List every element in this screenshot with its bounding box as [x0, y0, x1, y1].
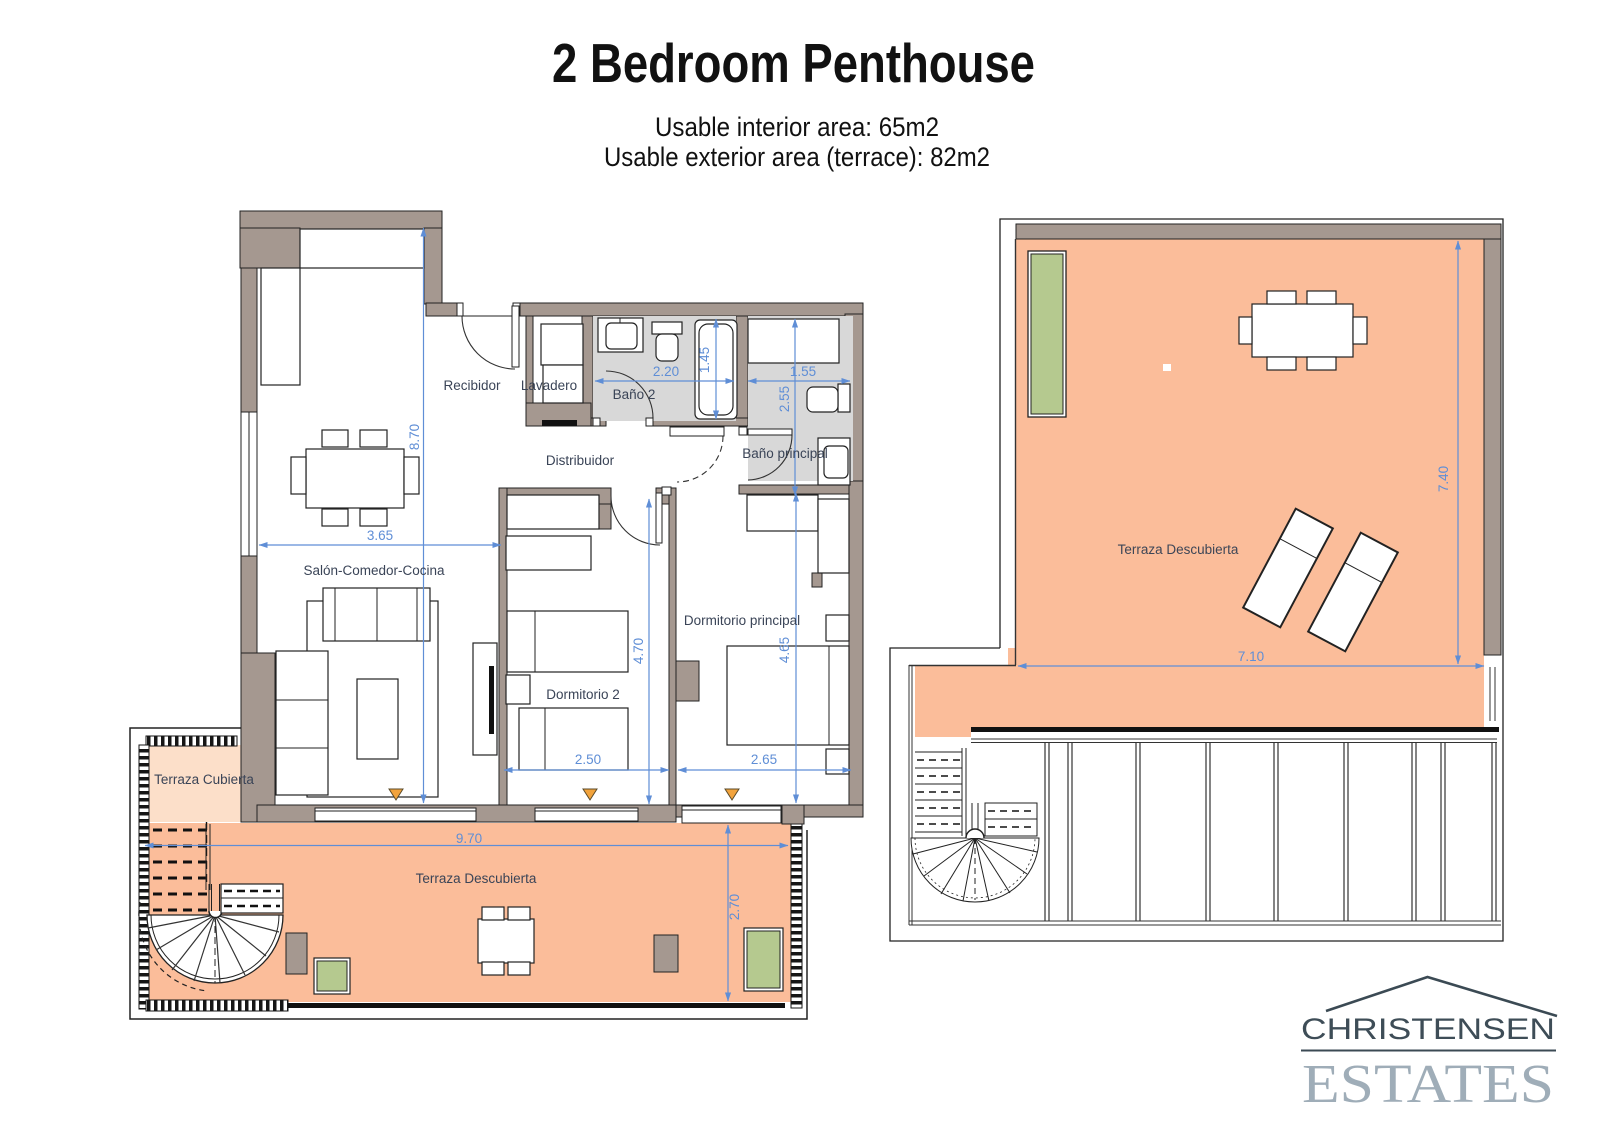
svg-text:9.70: 9.70: [456, 831, 482, 846]
svg-text:Salón-Comedor-Cocina: Salón-Comedor-Cocina: [303, 563, 445, 578]
svg-text:2.55: 2.55: [777, 386, 792, 412]
svg-text:Baño 2: Baño 2: [613, 387, 656, 402]
svg-text:1.55: 1.55: [790, 364, 816, 379]
svg-text:2.70: 2.70: [727, 894, 742, 920]
svg-text:Usable exterior area (terrace): Usable exterior area (terrace): 82m2: [604, 142, 990, 172]
svg-text:3.65: 3.65: [367, 528, 393, 543]
svg-text:4.70: 4.70: [631, 638, 646, 664]
svg-text:Recibidor: Recibidor: [443, 378, 501, 393]
svg-text:Dormitorio 2: Dormitorio 2: [546, 687, 620, 702]
svg-text:2 Bedroom Penthouse: 2 Bedroom Penthouse: [552, 32, 1035, 94]
svg-text:Distribuidor: Distribuidor: [546, 453, 615, 468]
svg-text:2.50: 2.50: [575, 752, 601, 767]
svg-text:ESTATES: ESTATES: [1302, 1053, 1554, 1114]
svg-text:1.45: 1.45: [697, 347, 712, 373]
svg-text:CHRISTENSEN: CHRISTENSEN: [1301, 1013, 1555, 1046]
svg-text:2.20: 2.20: [653, 364, 679, 379]
svg-text:Baño principal: Baño principal: [742, 446, 828, 461]
svg-text:Terraza Descubierta: Terraza Descubierta: [416, 871, 537, 886]
svg-text:Lavadero: Lavadero: [521, 378, 577, 393]
svg-text:Terraza Cubierta: Terraza Cubierta: [154, 772, 254, 787]
svg-text:2.65: 2.65: [751, 752, 777, 767]
svg-text:7.40: 7.40: [1436, 466, 1451, 492]
svg-text:Terraza Descubierta: Terraza Descubierta: [1118, 542, 1239, 557]
svg-text:8.70: 8.70: [407, 424, 422, 450]
svg-text:7.10: 7.10: [1238, 649, 1264, 664]
svg-text:Dormitorio principal: Dormitorio principal: [684, 613, 800, 628]
svg-text:Usable interior area: 65m2: Usable interior area: 65m2: [655, 112, 939, 142]
svg-text:4.65: 4.65: [777, 637, 792, 663]
